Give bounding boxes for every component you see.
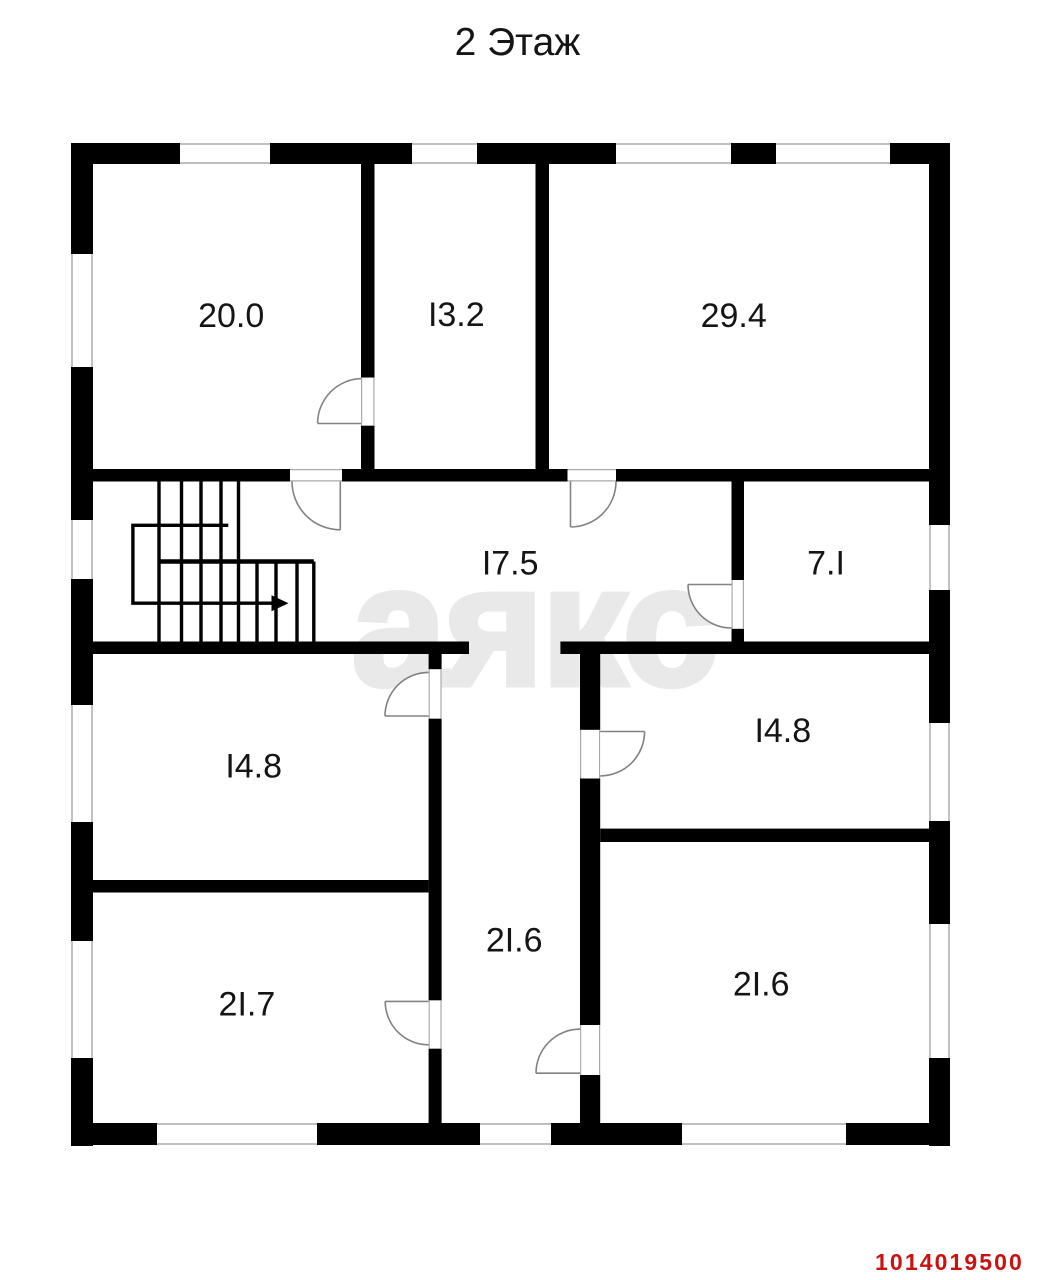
svg-text:I3.2: I3.2 — [428, 296, 485, 334]
svg-text:I7.5: I7.5 — [482, 545, 539, 583]
svg-text:2I.6: 2I.6 — [733, 966, 790, 1004]
svg-text:7.I: 7.I — [807, 545, 845, 583]
svg-text:2I.7: 2I.7 — [219, 986, 276, 1024]
svg-text:1014019500: 1014019500 — [875, 1249, 1024, 1275]
svg-text:2 Этаж: 2 Этаж — [455, 21, 581, 64]
svg-text:I4.8: I4.8 — [225, 748, 282, 786]
svg-text:20.0: 20.0 — [198, 297, 264, 335]
svg-text:I4.8: I4.8 — [754, 712, 811, 750]
svg-text:29.4: 29.4 — [701, 297, 767, 335]
svg-text:2I.6: 2I.6 — [486, 922, 543, 960]
